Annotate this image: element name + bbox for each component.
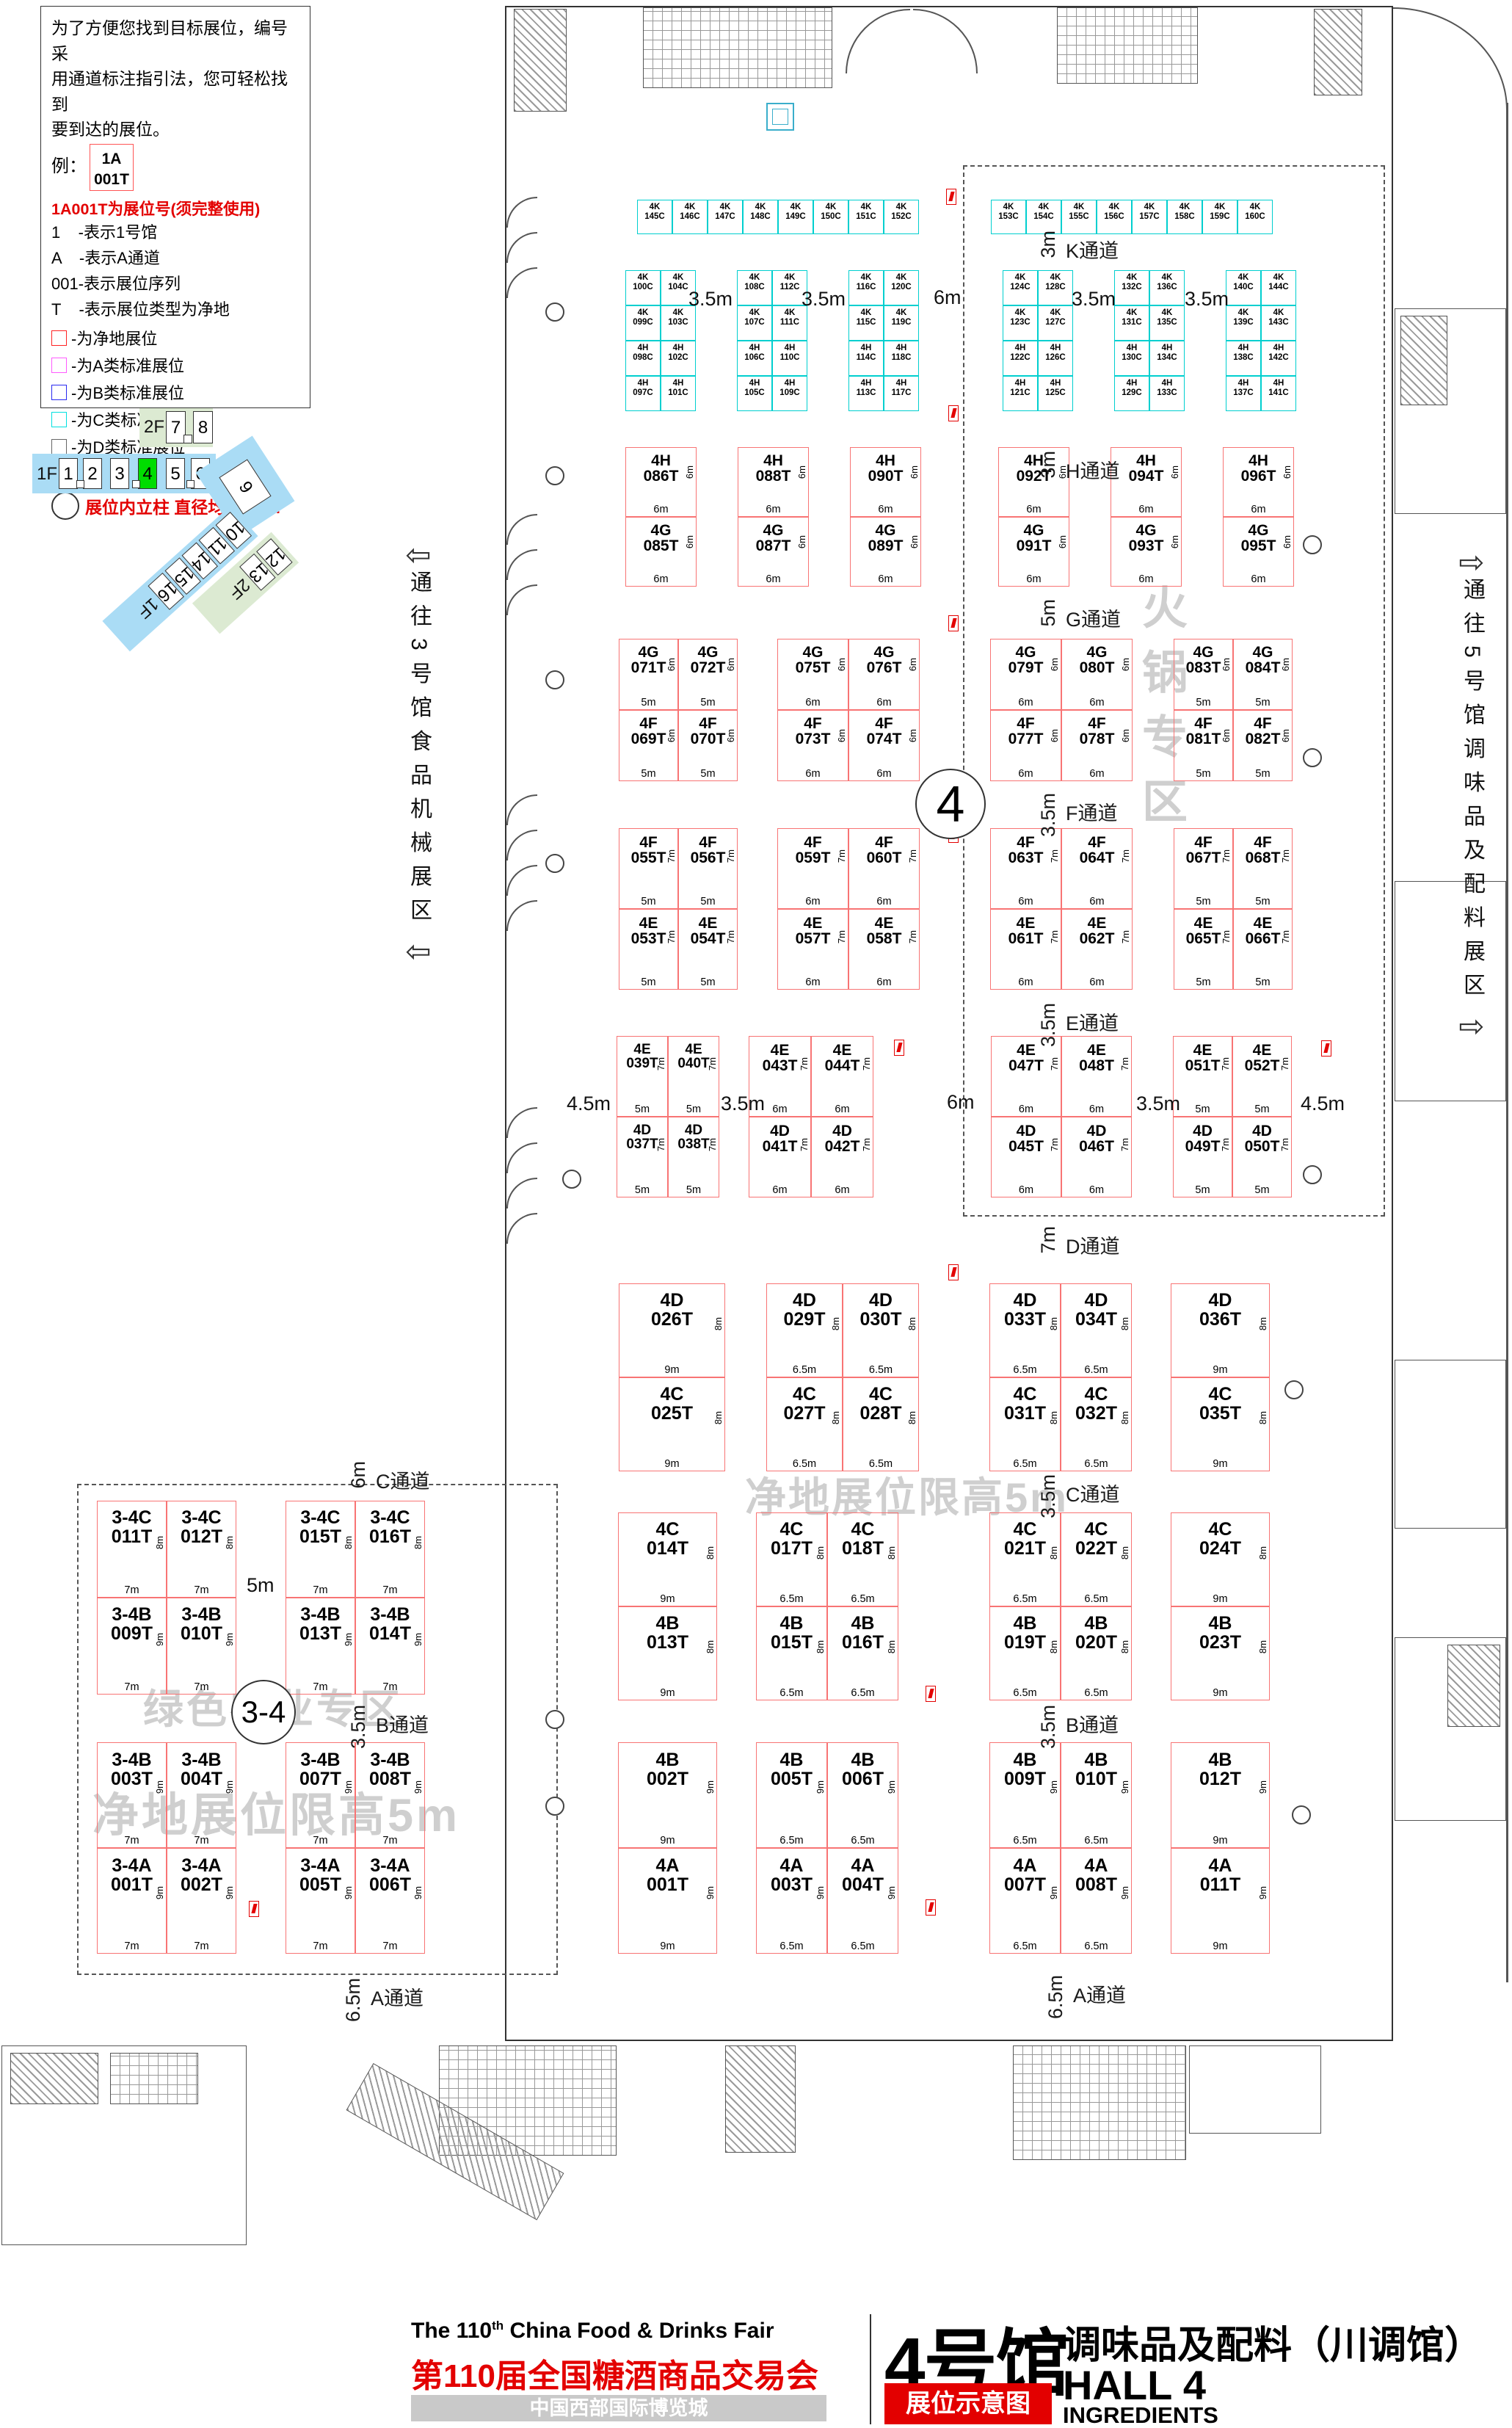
legend-intro: 为了方便您找到目标展位，编号采 用通道标注指引法，您可轻松找到 要到达的展位。: [51, 15, 299, 142]
booth: 4C014T8m9m: [618, 1512, 717, 1606]
booth: 3-4C012T8m7m: [167, 1501, 236, 1598]
pillar-icon: [1292, 1805, 1311, 1824]
booth-width-label: 6m: [778, 697, 848, 709]
booth-width-label: 9m: [1171, 1835, 1269, 1847]
booth: 4K151C: [848, 200, 884, 234]
dimension-label: 3.5m: [1136, 1092, 1180, 1115]
booth-id: 4B012T: [1171, 1751, 1269, 1789]
booth: 4D037T7m5m: [617, 1117, 668, 1197]
booth: 4C025T8m9m: [619, 1377, 725, 1471]
booth-depth-label: 8m: [713, 1411, 724, 1424]
booth-width-label: 6m: [991, 697, 1061, 709]
booth-width-label: 5m: [1174, 1184, 1232, 1196]
booth: 4K140C: [1226, 270, 1261, 305]
booth-depth-label: 7m: [1280, 930, 1291, 943]
booth: 4H141C: [1261, 376, 1296, 411]
booth: 4K116C: [848, 270, 884, 305]
pillar-icon: [51, 492, 79, 520]
corridor-right-text: 通往5号馆调味品及配料展区: [1455, 578, 1488, 1007]
booth-depth-label: 6m: [1221, 658, 1232, 671]
booth-width-label: 7m: [356, 1940, 424, 1952]
hall-number-marker: 4: [915, 769, 986, 839]
booth-width-label: 6m: [778, 896, 848, 907]
booth-depth-label: 8m: [224, 1536, 235, 1549]
booth-depth-label: 6m: [1057, 535, 1068, 548]
booth-depth-label: 9m: [705, 1886, 716, 1899]
booth: 4G071T6m5m: [619, 639, 678, 710]
booth-width-label: 6m: [999, 573, 1069, 585]
aisle-width-label: 3.5m: [1037, 1003, 1060, 1047]
booth: 4F067T7m5m: [1174, 828, 1233, 909]
booth-width-label: 6m: [991, 976, 1061, 988]
booth-width-label: 5m: [1174, 1104, 1232, 1115]
booth-width-label: 6.5m: [1061, 1458, 1131, 1470]
booth-depth-label: 7m: [1279, 1057, 1290, 1070]
booth: 4K120C: [884, 270, 919, 305]
example-booth-line1: 1A: [90, 149, 133, 170]
dimension-label: 3.5m: [1185, 288, 1229, 311]
category-en: INGREDIENTS: [1063, 2402, 1218, 2428]
booth-width-label: 5m: [679, 896, 737, 907]
dimension-label: 3.5m: [688, 288, 733, 311]
fire-hydrant-icon: [926, 1899, 936, 1916]
booth-depth-label: 8m: [886, 1640, 897, 1653]
booth: 4G075T6m6m: [777, 639, 848, 710]
minimap-hall-3: 3: [110, 458, 129, 489]
booth-depth-label: 6m: [907, 658, 918, 671]
booth: 4H094T6m6m: [1111, 447, 1182, 517]
booth: 4K123C: [1003, 305, 1038, 341]
booth: 4A011T9m9m: [1171, 1848, 1270, 1954]
booth-width-label: 7m: [167, 1681, 236, 1693]
booth-width-label: 6.5m: [767, 1458, 842, 1470]
booth: 4H126C: [1038, 341, 1073, 376]
booth: 3-4B008T9m7m: [355, 1742, 425, 1848]
booth-depth-label: 8m: [713, 1317, 724, 1330]
booth-id: 4C035T: [1171, 1385, 1269, 1424]
aisle-label: 6.5mA通道: [371, 1982, 424, 2011]
booth-depth-label: 9m: [886, 1886, 897, 1899]
pillar-icon: [545, 1710, 564, 1729]
booth-width-label: 7m: [167, 1584, 236, 1596]
booth: 4E047T7m6m: [991, 1036, 1061, 1117]
legend-class-item: -为B类标准展位: [51, 380, 299, 404]
booth-width-label: 6m: [1062, 896, 1132, 907]
booth: 4B013T8m9m: [618, 1606, 717, 1700]
booth-depth-label: 7m: [1049, 1057, 1060, 1070]
booth-class-swatch: [51, 358, 67, 373]
restroom-block: [1057, 7, 1198, 84]
booth-depth-label: 9m: [886, 1780, 897, 1794]
booth-depth-label: 7m: [1049, 930, 1060, 943]
aisle-label: 6.5mA通道: [1073, 1979, 1126, 2008]
fair-title-en: The 110th China Food & Drinks Fair: [411, 2319, 774, 2344]
booth: 4K160C: [1237, 200, 1273, 234]
booth: 4K146C: [672, 200, 708, 234]
booth: 4E065T7m5m: [1174, 909, 1233, 990]
booth-width-label: 5m: [679, 768, 737, 780]
booth: 4K131C: [1114, 305, 1149, 341]
booth: 4K136C: [1149, 270, 1185, 305]
booth-depth-label: 8m: [343, 1536, 354, 1549]
booth-width-label: 7m: [98, 1940, 166, 1952]
booth-depth-label: 6m: [909, 535, 920, 548]
aisle-name: H通道: [1066, 460, 1120, 482]
booth-width-label: 6.5m: [1061, 1940, 1131, 1952]
booth-depth-label: 8m: [1048, 1640, 1059, 1653]
booth: 4D045T7m6m: [991, 1117, 1061, 1197]
minimap-connector: [132, 480, 140, 488]
booth: 4H113C: [848, 376, 884, 411]
restroom-block: [1013, 2045, 1186, 2160]
booth-depth-label: 6m: [1120, 658, 1131, 671]
fire-hydrant-icon: [894, 1040, 904, 1056]
booth-width-label: 6m: [812, 1104, 873, 1115]
booth-depth-label: 7m: [666, 849, 677, 863]
booth-width-label: 5m: [1234, 896, 1292, 907]
fire-hydrant-icon: [249, 1901, 259, 1917]
booth: 4F073T6m6m: [777, 710, 848, 781]
booth-depth-label: 8m: [1048, 1317, 1059, 1330]
booth-class-swatch: [51, 330, 67, 346]
booth: 4H118C: [884, 341, 919, 376]
booth: 4C032T8m6.5m: [1061, 1377, 1132, 1471]
booth: 4H098C: [625, 341, 661, 376]
booth: 4G093T6m6m: [1111, 517, 1182, 587]
booth: 4B010T9m6.5m: [1061, 1742, 1132, 1848]
booth-depth-label: 7m: [799, 1138, 810, 1151]
stairs-icon: [1400, 316, 1447, 405]
aisle-label: 6mC通道: [376, 1465, 430, 1494]
booth-depth-label: 8m: [1257, 1411, 1268, 1424]
booth-width-label: 6m: [1062, 697, 1132, 709]
booth: 4D050T7m5m: [1232, 1117, 1292, 1197]
booth-width-label: 7m: [98, 1835, 166, 1847]
booth-depth-label: 7m: [655, 1057, 666, 1070]
booth: 4E051T7m5m: [1173, 1036, 1232, 1117]
booth-depth-label: 9m: [1257, 1780, 1268, 1794]
aisle-label: 3.5mC通道: [1066, 1479, 1120, 1507]
booth: 3-4B013T9m7m: [286, 1598, 355, 1695]
legend-note: 1A001T为展位号(须完整使用): [51, 197, 299, 220]
booth-depth-label: 7m: [836, 930, 847, 943]
booth-width-label: 6m: [778, 768, 848, 780]
booth: 4H114C: [848, 341, 884, 376]
booth-depth-label: 8m: [705, 1546, 716, 1559]
booth-width-label: 7m: [286, 1835, 355, 1847]
booth-width-label: 5m: [669, 1184, 719, 1196]
booth: 4C035T8m9m: [1171, 1377, 1270, 1471]
booth: 4C021T8m6.5m: [989, 1512, 1061, 1606]
aisle-name: C通道: [376, 1471, 430, 1493]
legend-box: 为了方便您找到目标展位，编号采 用通道标注指引法，您可轻松找到 要到达的展位。 …: [40, 6, 310, 408]
legend-class-text: -为A类标准展位: [71, 353, 184, 377]
booth-depth-label: 8m: [1119, 1411, 1130, 1424]
stairs-icon: [514, 9, 567, 112]
booth: 4C018T8m6.5m: [827, 1512, 898, 1606]
booth: 4F064T7m6m: [1061, 828, 1133, 909]
booth-width-label: 6m: [849, 697, 919, 709]
booth-depth-label: 7m: [1119, 1138, 1130, 1151]
booth: 4F056T7m5m: [678, 828, 738, 909]
booth: 4B015T8m6.5m: [756, 1606, 827, 1700]
booth: 4K150C: [813, 200, 848, 234]
aisle-name: B通道: [1066, 1714, 1119, 1736]
minimap-2f-label: 2F: [144, 417, 164, 438]
booth: 4H105C: [737, 376, 772, 411]
dimension-label: 5m: [247, 1574, 275, 1597]
booth: 4E053T7m5m: [619, 909, 678, 990]
minimap-hall-2: 2: [83, 458, 102, 489]
hall-number-marker: 3-4: [231, 1680, 296, 1744]
booth: 4A003T9m6.5m: [756, 1848, 827, 1954]
booth-depth-label: 7m: [1120, 849, 1131, 863]
booth: 3-4B010T9m7m: [167, 1598, 236, 1695]
booth-depth-label: 6m: [666, 729, 677, 742]
wall: [1189, 2045, 1321, 2134]
booth-depth-label: 7m: [861, 1057, 872, 1070]
restroom-block: [643, 7, 832, 88]
booth: 4F069T6m5m: [619, 710, 678, 781]
booth-depth-label: 7m: [1280, 849, 1291, 863]
booth: 4K143C: [1261, 305, 1296, 341]
booth: 4K145C: [637, 200, 672, 234]
aisle-width-label: 3.5m: [1037, 793, 1060, 837]
booth-width-label: 9m: [1171, 1458, 1269, 1470]
booth-depth-label: 9m: [815, 1780, 826, 1794]
booth-width-label: 6m: [999, 504, 1069, 515]
booth: 4D030T8m6.5m: [843, 1283, 919, 1377]
booth-depth-label: 7m: [1279, 1138, 1290, 1151]
pillar-icon: [545, 466, 564, 485]
booth: 4A001T9m9m: [618, 1848, 717, 1954]
wall: [772, 109, 788, 125]
booth: 4F078T6m6m: [1061, 710, 1133, 781]
booth-width-label: 9m: [619, 1364, 724, 1376]
booth-width-label: 6.5m: [1061, 1593, 1131, 1605]
booth: 4E048T7m6m: [1061, 1036, 1132, 1117]
booth-class-swatch: [51, 439, 67, 454]
booth: 4E039T7m5m: [617, 1036, 668, 1117]
booth-width-label: 6m: [991, 768, 1061, 780]
booth: 4K128C: [1038, 270, 1073, 305]
booth-width-label: 7m: [98, 1584, 166, 1596]
booth-depth-label: 6m: [907, 729, 918, 742]
wall: [1506, 103, 1508, 1982]
booth-depth-label: 6m: [796, 535, 807, 548]
booth-width-label: 6m: [738, 573, 808, 585]
booth-width-label: 5m: [1174, 896, 1232, 907]
booth: 4K159C: [1202, 200, 1237, 234]
booth: 4K149C: [778, 200, 813, 234]
booth-width-label: 5m: [619, 896, 677, 907]
minimap-connector: [76, 480, 84, 488]
booth-depth-label: 7m: [1220, 1057, 1231, 1070]
booth: 4D029T8m6.5m: [766, 1283, 843, 1377]
booth: 3-4B004T9m7m: [167, 1742, 236, 1848]
booth: 3-4B014T9m7m: [355, 1598, 425, 1695]
booth-width-label: 7m: [167, 1940, 236, 1952]
booth: 4B020T8m6.5m: [1061, 1606, 1132, 1700]
booth-depth-label: 7m: [1119, 1057, 1130, 1070]
booth-depth-label: 7m: [1221, 930, 1232, 943]
booth: 4H133C: [1149, 376, 1185, 411]
booth-width-label: 6.5m: [990, 1458, 1060, 1470]
booth-depth-label: 6m: [836, 729, 847, 742]
booth: 4B009T9m6.5m: [989, 1742, 1061, 1848]
booth: 4C022T8m6.5m: [1061, 1512, 1132, 1606]
stairs-icon: [1314, 9, 1362, 95]
legend-class-item: -为A类标准展位: [51, 353, 299, 377]
booth: 4H088T6m6m: [738, 447, 809, 517]
aisle-name: C通道: [1066, 1484, 1120, 1506]
minimap-connector: [183, 435, 192, 443]
booth-depth-label: 8m: [906, 1317, 917, 1330]
booth: 4H110C: [772, 341, 807, 376]
booth-depth-label: 6m: [684, 535, 695, 548]
booth-depth-label: 9m: [815, 1886, 826, 1899]
booth-depth-label: 7m: [1220, 1138, 1231, 1151]
arrow-right-icon: ⇨: [1450, 1011, 1494, 1042]
booth: 4G089T6m6m: [850, 517, 921, 587]
minimap-hall-1: 1: [59, 458, 78, 489]
booth-depth-label: 8m: [1257, 1640, 1268, 1653]
arrow-left-icon: ⇦: [396, 936, 440, 967]
aisle-width-label: 6.5m: [1044, 1975, 1067, 2019]
booth: 4H125C: [1038, 376, 1073, 411]
booth: 4G095T6m6m: [1223, 517, 1294, 587]
booth-width-label: 6m: [1224, 504, 1293, 515]
booth: 4K107C: [737, 305, 772, 341]
stairs-icon: [1447, 1645, 1500, 1727]
booth-depth-label: 6m: [836, 658, 847, 671]
booth-depth-label: 7m: [907, 849, 918, 863]
booth-width-label: 6.5m: [990, 1687, 1060, 1699]
aisle-label: 3mK通道: [1066, 235, 1119, 264]
booth-width-label: 5m: [617, 1184, 667, 1196]
booth-depth-label: 8m: [830, 1411, 841, 1424]
booth: 4C028T8m6.5m: [843, 1377, 919, 1471]
booth: 4C017T8m6.5m: [756, 1512, 827, 1606]
booth-width-label: 6.5m: [828, 1687, 898, 1699]
booth: 4K127C: [1038, 305, 1073, 341]
booth-width-label: 6.5m: [1061, 1364, 1131, 1376]
example-booth-line2: 001T: [90, 170, 133, 190]
booth-width-label: 5m: [679, 976, 737, 988]
booth: 4K103C: [661, 305, 696, 341]
fire-hydrant-icon: [948, 405, 959, 421]
booth: 4E054T7m5m: [678, 909, 738, 990]
pillar-icon: [1303, 1165, 1322, 1184]
stairs-icon: [725, 2045, 796, 2153]
minimap-hall-4: 4: [138, 458, 157, 489]
booth-class-swatch: [51, 385, 67, 400]
aisle-width-label: 3m: [1037, 451, 1060, 479]
booth-depth-label: 6m: [725, 658, 736, 671]
booth-width-label: 6.5m: [990, 1593, 1060, 1605]
aisle-name: K通道: [1066, 240, 1119, 262]
booth: 4A007T9m6.5m: [989, 1848, 1061, 1954]
booth: 4K158C: [1167, 200, 1202, 234]
booth: 4G072T6m5m: [678, 639, 738, 710]
booth-width-label: 6m: [992, 1104, 1061, 1115]
booth: 4D026T8m9m: [619, 1283, 725, 1377]
booth-width-label: 6.5m: [757, 1835, 826, 1847]
minimap-hall-7: 7: [166, 411, 186, 443]
minimap-connector: [186, 480, 195, 488]
booth: 3-4A005T9m7m: [286, 1848, 355, 1954]
booth: 4F059T7m6m: [777, 828, 848, 909]
booth-width-label: 6.5m: [843, 1364, 918, 1376]
booth: 3-4A001T9m7m: [97, 1848, 167, 1954]
booth: 4G084T6m5m: [1233, 639, 1293, 710]
booth-width-label: 6.5m: [767, 1364, 842, 1376]
booth: 4E040T7m5m: [668, 1036, 719, 1117]
booth-depth-label: 8m: [1048, 1546, 1059, 1559]
example-booth: 1A 001T: [90, 144, 134, 191]
pillar-icon: [1284, 1380, 1304, 1399]
booth: 3-4B009T9m7m: [97, 1598, 167, 1695]
booth: 4F081T6m5m: [1174, 710, 1233, 781]
legend-example-label: 例：: [51, 151, 87, 177]
pillar-icon: [1303, 748, 1322, 767]
booth-depth-label: 7m: [1221, 849, 1232, 863]
booth: 4K154C: [1026, 200, 1061, 234]
booth-depth-label: 8m: [1119, 1640, 1130, 1653]
booth: 4D049T7m5m: [1173, 1117, 1232, 1197]
booth: 4K147C: [708, 200, 743, 234]
aisle-name: E通道: [1066, 1012, 1119, 1034]
booth-depth-label: 6m: [909, 465, 920, 479]
booth: 4K100C: [625, 270, 661, 305]
booth-depth-label: 6m: [1282, 465, 1293, 479]
booth-width-label: 6.5m: [757, 1940, 826, 1952]
booth-depth-label: 6m: [1120, 729, 1131, 742]
legend-class-text: -为净地展位: [71, 326, 157, 349]
booth: 4C024T8m9m: [1171, 1512, 1270, 1606]
booth-width-label: 6m: [626, 504, 696, 515]
booth: 4F068T7m5m: [1233, 828, 1293, 909]
booth: 3-4C016T8m7m: [355, 1501, 425, 1598]
booth-depth-label: 9m: [343, 1886, 354, 1899]
dimension-label: 3.5m: [721, 1092, 765, 1115]
booth-width-label: 7m: [356, 1584, 424, 1596]
fire-hydrant-icon: [946, 189, 956, 205]
arrow-right-icon: ⇨: [1450, 547, 1494, 578]
dimension-label: 3.5m: [1072, 288, 1116, 311]
aisle-name: A通道: [1073, 1985, 1126, 2007]
booth: 4C027T8m6.5m: [766, 1377, 843, 1471]
booth-id: 4B002T: [619, 1751, 716, 1789]
booth: 4B002T9m9m: [618, 1742, 717, 1848]
booth-width-label: 6m: [1224, 573, 1293, 585]
booth-depth-label: 6m: [725, 729, 736, 742]
booth-width-label: 6m: [1062, 976, 1132, 988]
booth: 4B016T8m6.5m: [827, 1606, 898, 1700]
booth-width-label: 5m: [1233, 1104, 1291, 1115]
booth: 4H106C: [737, 341, 772, 376]
booth: 4F074T6m6m: [848, 710, 920, 781]
aisle-width-label: 6.5m: [342, 1978, 365, 2022]
booth-depth-label: 7m: [836, 849, 847, 863]
fair-title-cn: 第110届全国糖酒商品交易会: [411, 2349, 818, 2396]
booth-depth-label: 9m: [224, 1780, 235, 1794]
pillar-icon: [545, 670, 564, 689]
booth: 4K132C: [1114, 270, 1149, 305]
booth: 4E062T7m6m: [1061, 909, 1133, 990]
booth: 4D041T7m6m: [749, 1117, 811, 1197]
booth: 4G080T6m6m: [1061, 639, 1133, 710]
